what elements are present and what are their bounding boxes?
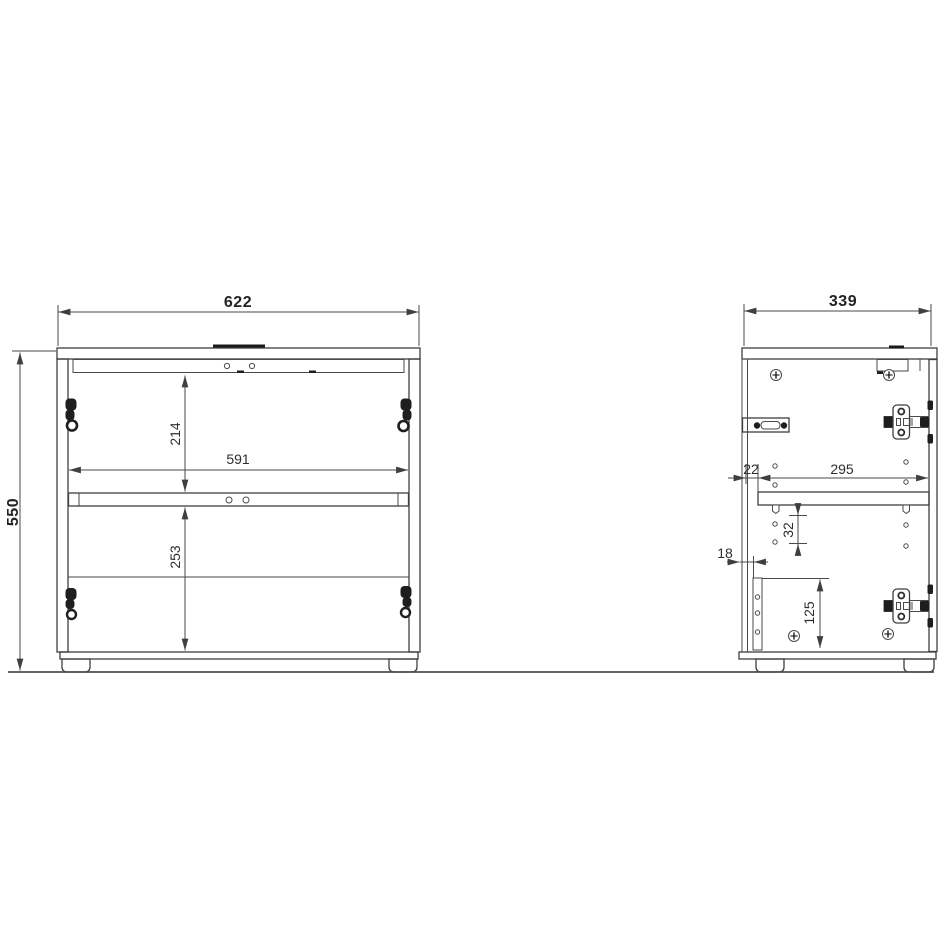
- rail-hole: [755, 595, 759, 599]
- side-back-panel: [742, 359, 748, 652]
- hinge-icon: [66, 399, 78, 431]
- cam-lock-mark: [237, 371, 244, 374]
- dim-overall-depth-label: 339: [829, 293, 857, 310]
- dimension-overall-depth: 339: [744, 293, 931, 346]
- side-shelf: [758, 492, 929, 505]
- rail-hole: [755, 630, 759, 634]
- dim-shelf-back-offset-label: 22: [743, 461, 759, 477]
- cam-lock-mark: [877, 372, 883, 375]
- dim-shelf-depth-label: 295: [830, 461, 854, 477]
- bottom-mounting-rail: [753, 578, 762, 650]
- side-right-foot: [904, 659, 934, 672]
- dimension-overall-height: 550: [5, 351, 56, 671]
- dimension-bottom-opening: 253: [167, 508, 185, 651]
- dim-rail-height-label: 125: [801, 601, 817, 625]
- dimension-rail-back-offset: 18: [717, 545, 768, 578]
- dim-overall-height-label: 550: [5, 498, 22, 526]
- side-left-foot: [756, 659, 784, 672]
- dim-top-opening-label: 214: [167, 422, 183, 446]
- cam-lock-mark: [309, 371, 316, 374]
- dimension-top-opening: 214: [167, 376, 185, 492]
- hinge-icon: [401, 586, 412, 617]
- cabinet-technical-drawing: 622 550 214 591 253: [0, 0, 940, 940]
- front-middle-shelf: [69, 493, 409, 506]
- shelf-support-peg: [903, 505, 910, 514]
- dim-overall-width-label: 622: [224, 294, 252, 311]
- hinge-icon: [66, 588, 77, 619]
- side-top-panel: [742, 348, 937, 359]
- dimension-shelf-back-offset: 22: [728, 461, 759, 492]
- front-bottom-panel: [60, 652, 418, 659]
- front-left-foot: [62, 659, 90, 672]
- side-view: 339 22 295 32: [717, 293, 937, 672]
- dowel-hole: [226, 497, 232, 503]
- shelf-support-peg: [773, 505, 780, 514]
- dim-inner-width-label: 591: [226, 451, 250, 467]
- dim-rail-back-offset-label: 18: [717, 545, 733, 561]
- front-top-panel: [57, 348, 420, 359]
- side-top-front-rail: [877, 360, 908, 372]
- dim-bottom-opening-label: 253: [167, 545, 183, 569]
- dimension-inner-width: 591: [69, 451, 408, 470]
- front-view: 622 550 214 591 253: [5, 294, 420, 672]
- dimension-overall-width: 622: [58, 294, 419, 346]
- dim-hole-spacing-label: 32: [780, 522, 796, 538]
- dowel-hole: [249, 363, 254, 368]
- dowel-hole: [224, 363, 229, 368]
- hinge-icon: [399, 399, 412, 432]
- dimension-shelf-depth: 295: [759, 461, 929, 478]
- dimension-hole-spacing: 32: [780, 503, 807, 556]
- front-right-foot: [389, 659, 417, 672]
- drawer-slide-icon: [743, 418, 790, 432]
- rail-hole: [755, 611, 759, 615]
- dowel-hole: [243, 497, 249, 503]
- side-bottom-panel: [739, 652, 936, 659]
